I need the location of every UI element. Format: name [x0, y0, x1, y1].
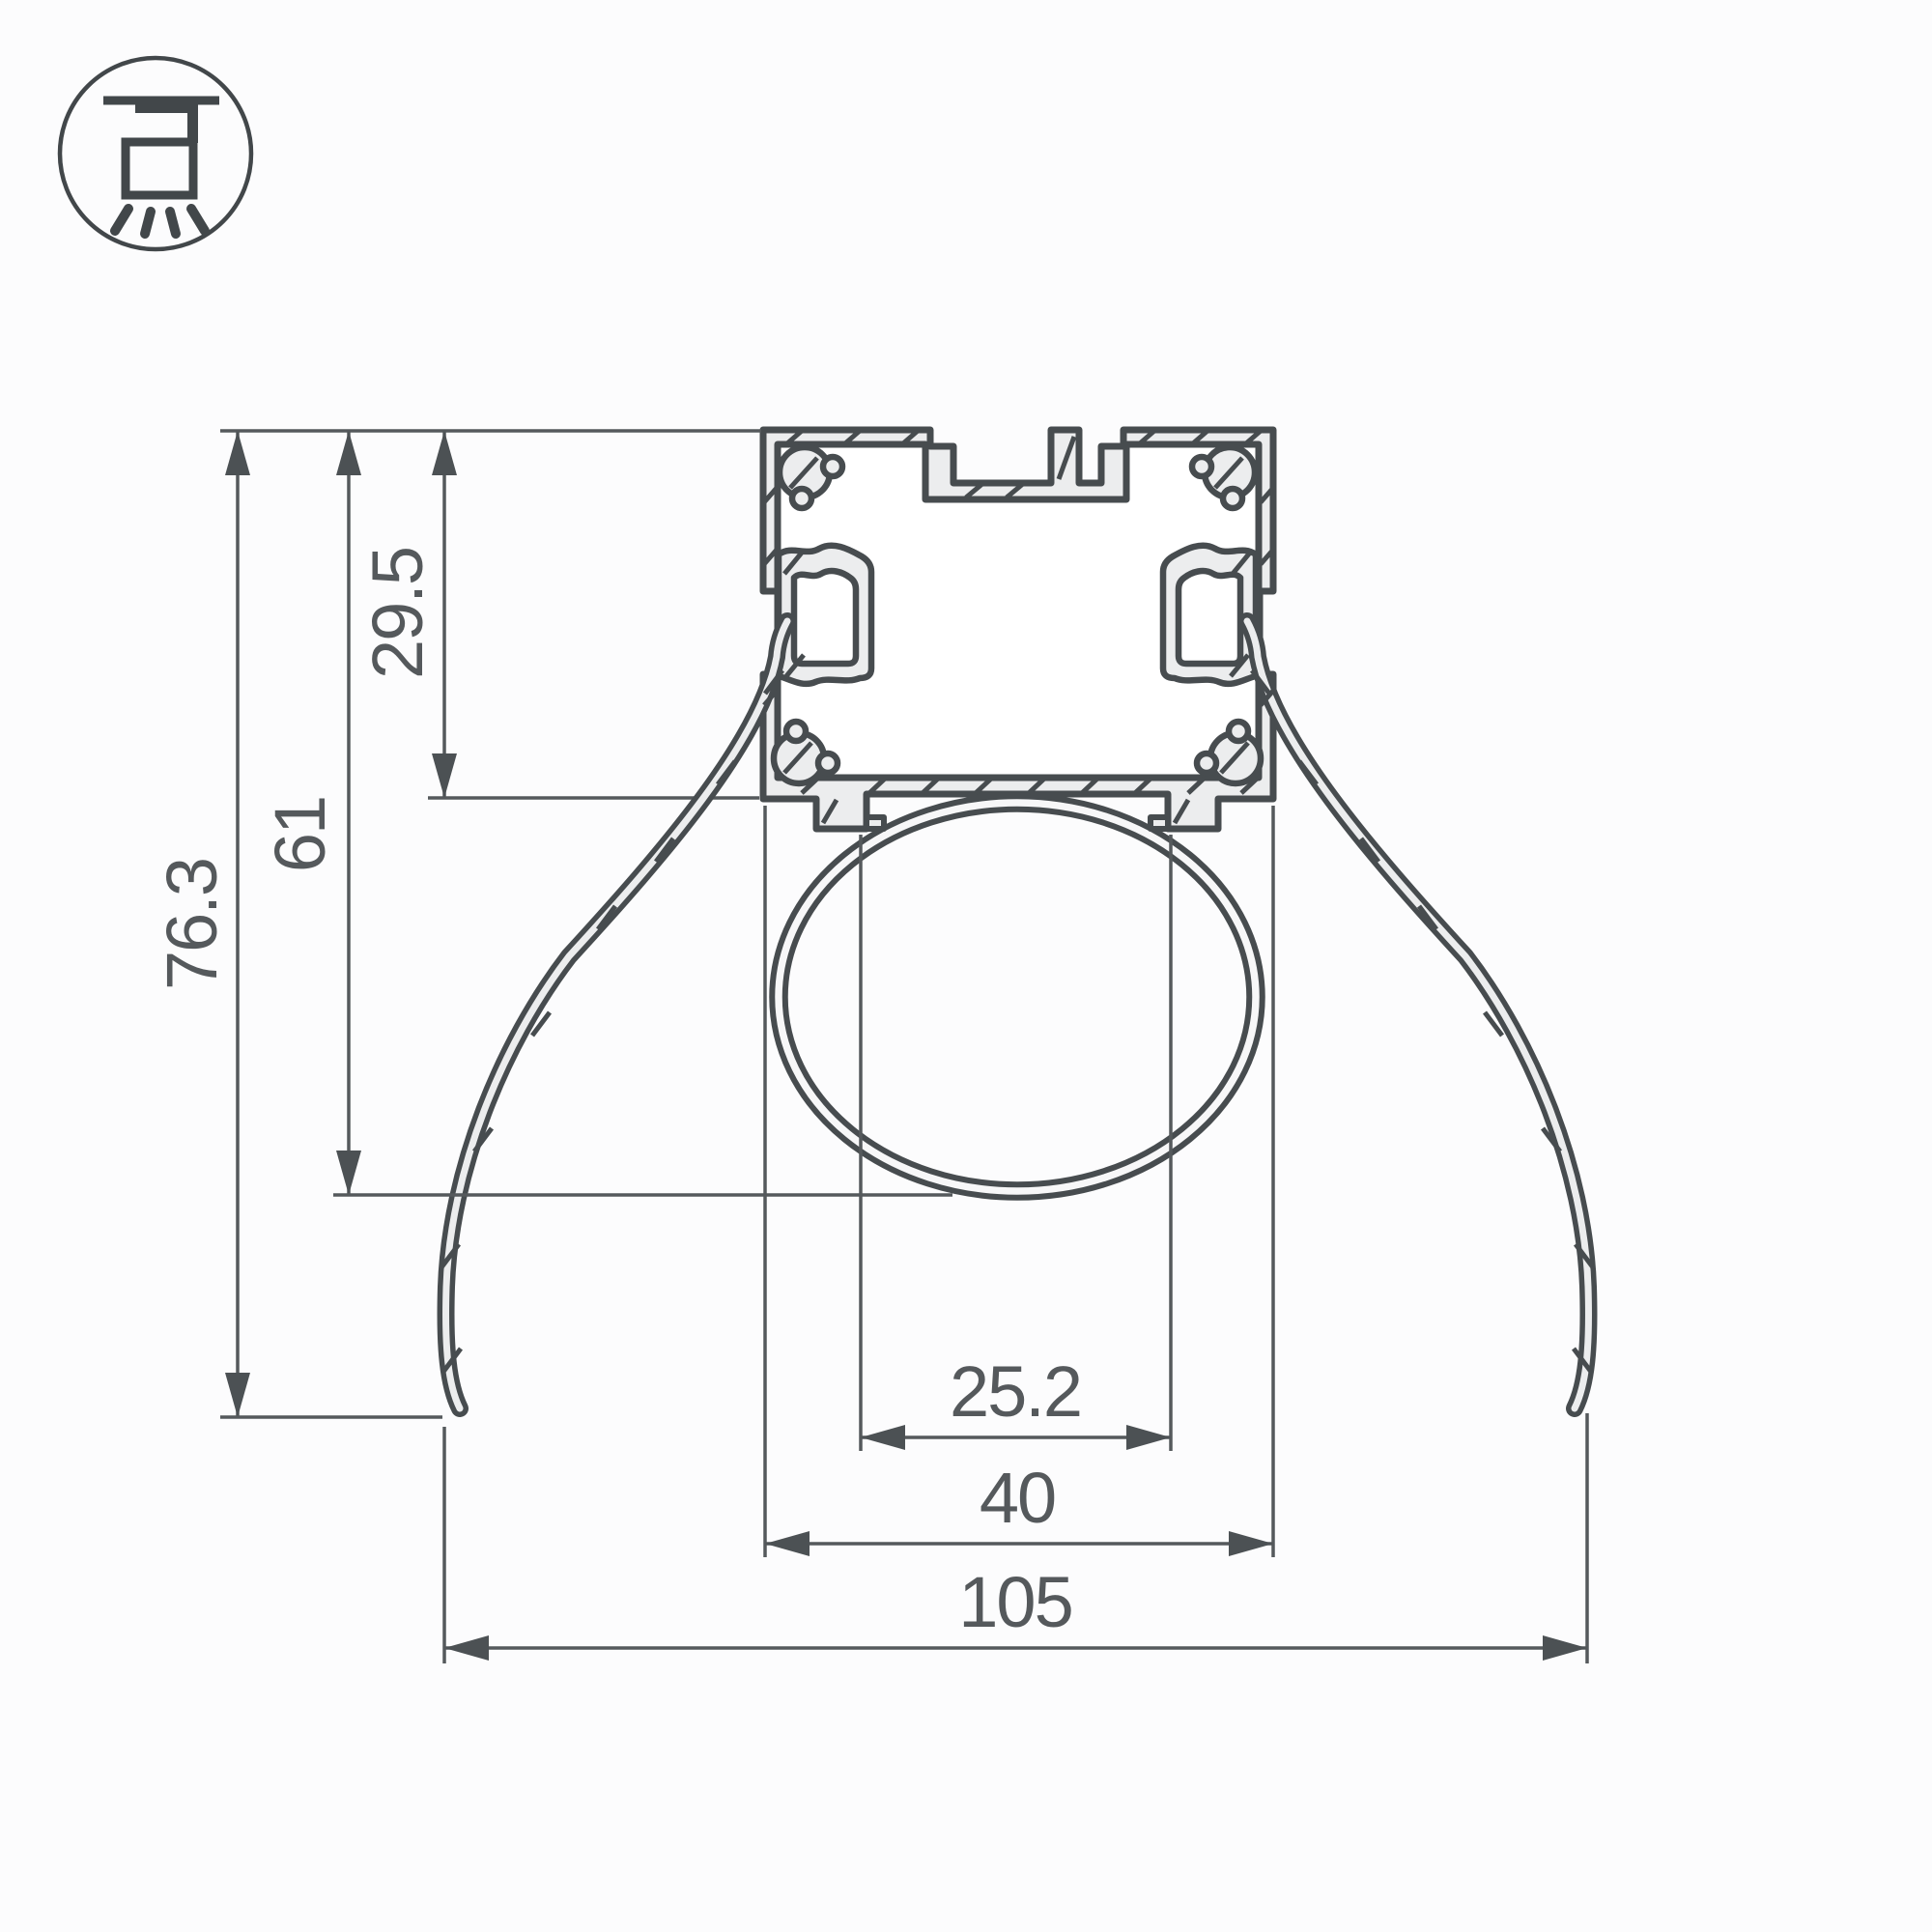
icon-circle [60, 58, 251, 249]
technical-drawing-page: 76.3 61 29.5 25.2 [0, 0, 1932, 1932]
dimension-profile-width: 40 [765, 806, 1273, 1557]
dimension-lens-mouth: 25.2 [861, 835, 1171, 1451]
dimension-label-25-2: 25.2 [950, 1351, 1081, 1432]
wing-shield-left [446, 621, 787, 1408]
dimension-label-61: 61 [260, 797, 340, 872]
icon-stem [187, 104, 198, 143]
lens-hook-left [867, 817, 884, 829]
profile-section-diagram: 76.3 61 29.5 25.2 [0, 0, 1932, 1932]
dimension-total-width: 105 [444, 1413, 1587, 1663]
diffuser-tube [779, 803, 1256, 1191]
lens-hook-right [1151, 817, 1168, 829]
dimension-label-29-5: 29.5 [357, 548, 438, 679]
dimension-label-105: 105 [958, 1562, 1071, 1642]
dimension-profile-height: 29.5 [357, 431, 457, 798]
wing-shield-right [1247, 621, 1588, 1408]
ceiling-mount-light-icon [60, 58, 251, 249]
icon-lamp-box [126, 142, 193, 195]
icon-light-rays [115, 209, 205, 234]
icon-track-adapter [135, 104, 189, 113]
dimension-label-40: 40 [980, 1458, 1055, 1538]
dimension-label-76-3: 76.3 [152, 859, 232, 990]
